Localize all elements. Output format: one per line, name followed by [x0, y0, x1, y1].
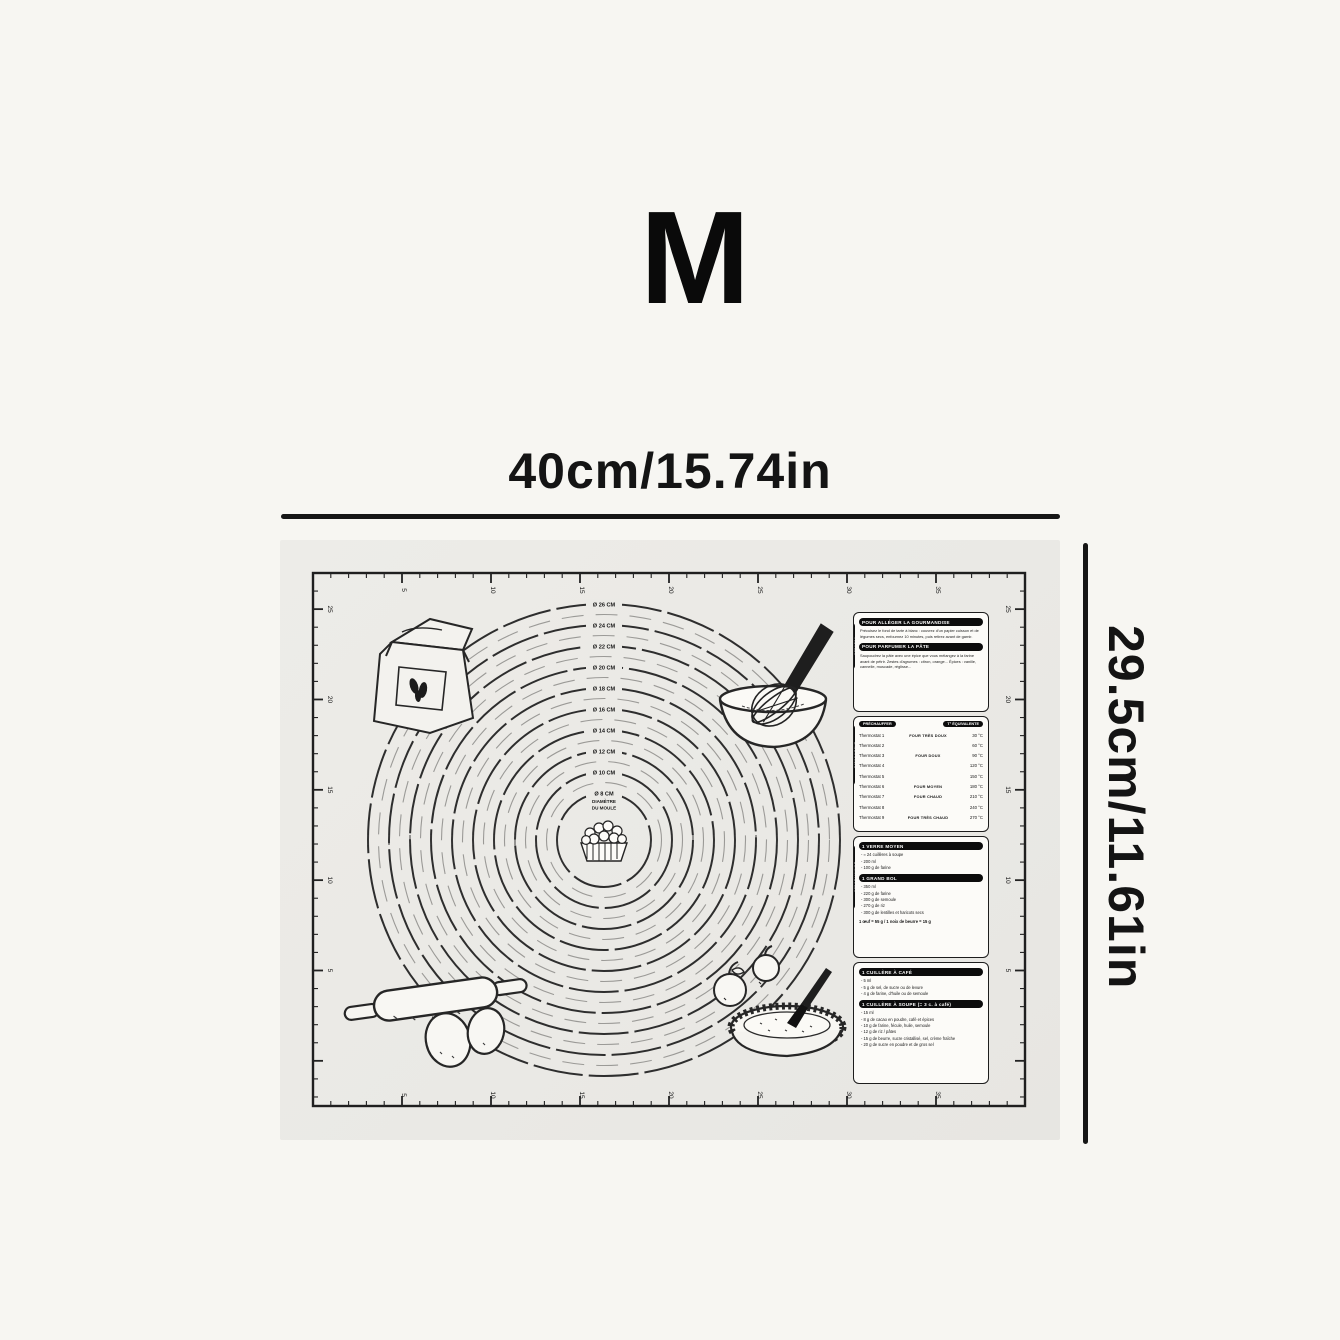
- thermostat-header-left: PRÉCHAUFFER: [859, 721, 896, 727]
- svg-text:5: 5: [400, 1093, 407, 1097]
- width-dimension-label: 40cm/15.74in: [280, 442, 1060, 500]
- center-label-line2: DU MOULE: [592, 806, 617, 811]
- equivalence-note: 1 œuf = 55 g / 1 noix de beurre = 15 g: [859, 919, 983, 924]
- tablespoon-heading: 1 CUILLÈRE À SOUPE (= 3 c. à café): [859, 1000, 983, 1008]
- thermostat-row: Thermostat 7 FOUR CHAUD 210 °C: [859, 792, 983, 802]
- oven-type: FOUR DOUX: [895, 753, 961, 758]
- svg-text:Ø 24 CM: Ø 24 CM: [593, 623, 616, 629]
- thermostat-row: Thermostat 1 FOUR TRÈS DOUX 30 °C: [859, 730, 983, 740]
- thermostat-label: Thermostat 5: [859, 774, 895, 779]
- svg-text:Ø 26 CM: Ø 26 CM: [593, 602, 616, 608]
- thermostat-table: Thermostat 1 FOUR TRÈS DOUX 30 °C Thermo…: [859, 730, 983, 823]
- svg-text:Ø 22 CM: Ø 22 CM: [593, 644, 616, 650]
- tartlet-icon: [581, 821, 627, 861]
- svg-text:10: 10: [1004, 877, 1011, 885]
- svg-text:25: 25: [326, 606, 333, 614]
- tips-heading-1: POUR ALLÉGER LA GOURMANDISE: [859, 618, 983, 626]
- temperature-value: 210 °C: [961, 794, 983, 799]
- svg-text:Ø 20 CM: Ø 20 CM: [593, 665, 616, 671]
- thermostat-label: Thermostat 8: [859, 805, 895, 810]
- svg-text:35: 35: [934, 1091, 941, 1099]
- thermostat-row: Thermostat 8 240 °C: [859, 802, 983, 812]
- teaspoon-list: 5 ml5 g de sel, de sucre ou de levure4 g…: [859, 978, 983, 997]
- measures-panel-tab: ÉQUIVALENCES: [853, 845, 855, 909]
- flour-bag-icon: [374, 619, 473, 733]
- tips-heading-2: POUR PARFUMER LA PÂTE: [859, 643, 983, 651]
- product-size-label: M: [595, 192, 795, 324]
- temperature-value: 30 °C: [961, 733, 983, 738]
- temperature-value: 60 °C: [961, 743, 983, 748]
- svg-text:30: 30: [845, 1091, 852, 1099]
- spoons-panel: 1 CUILLÈRE À CAFÉ 5 ml5 g de sel, de suc…: [853, 962, 989, 1084]
- temperature-value: 150 °C: [961, 774, 983, 779]
- svg-text:15: 15: [1004, 786, 1011, 794]
- svg-text:5: 5: [326, 969, 333, 973]
- apples-icon: [714, 946, 779, 1006]
- thermostat-row: Thermostat 9 FOUR TRÈS CHAUD 270 °C: [859, 812, 983, 822]
- svg-text:35: 35: [934, 586, 941, 594]
- bowl-list: 350 ml220 g de farine300 g de semoule270…: [859, 884, 983, 916]
- oven-type: FOUR MOYEN: [895, 784, 961, 789]
- svg-text:25: 25: [1004, 606, 1011, 614]
- thermostat-label: Thermostat 4: [859, 763, 895, 768]
- thermostat-label: Thermostat 7: [859, 794, 895, 799]
- svg-text:5: 5: [1004, 969, 1011, 973]
- thermostat-row: Thermostat 3 FOUR DOUX 90 °C: [859, 750, 983, 760]
- temperature-value: 120 °C: [961, 763, 983, 768]
- thermostat-label: Thermostat 1: [859, 733, 895, 738]
- oven-type: FOUR TRÈS DOUX: [895, 733, 961, 738]
- list-item: 20 g de sucre en poudre et de gros sel: [861, 1042, 983, 1048]
- svg-text:10: 10: [489, 586, 496, 594]
- bowl-heading: 1 GRAND BOL: [859, 874, 983, 882]
- temperature-value: 180 °C: [961, 784, 983, 789]
- whisk-bowl-icon: [720, 624, 833, 747]
- svg-text:Ø 16 CM: Ø 16 CM: [593, 707, 616, 713]
- svg-text:Ø 14 CM: Ø 14 CM: [593, 728, 616, 734]
- teaspoon-heading: 1 CUILLÈRE À CAFÉ: [859, 968, 983, 976]
- temperature-value: 270 °C: [961, 815, 983, 820]
- list-item: 100 g de farine: [861, 865, 983, 871]
- svg-text:Ø 10 CM: Ø 10 CM: [593, 770, 616, 776]
- svg-text:20: 20: [326, 696, 333, 704]
- thermostat-label: Thermostat 3: [859, 753, 895, 758]
- width-dimension-line: [281, 514, 1060, 519]
- svg-text:15: 15: [578, 1091, 585, 1099]
- thermostat-header-right: T° ÉQUIVALENTE: [943, 721, 983, 727]
- thermostat-row: Thermostat 2 60 °C: [859, 740, 983, 750]
- tips-body-1: Précuisez le fond de tarte à blanc : cou…: [860, 628, 982, 639]
- glass-list: ≈ 24 cuillères à soupe200 ml100 g de far…: [859, 852, 983, 871]
- height-dimension-line: [1083, 543, 1088, 1144]
- temperature-value: 240 °C: [961, 805, 983, 810]
- list-item: 4 g de farine, d'huile ou de semoule: [861, 991, 983, 997]
- tips-body-2: Saupoudrez la pâte avec une épice que vo…: [860, 653, 982, 670]
- thermostat-label: Thermostat 2: [859, 743, 895, 748]
- tips-panel-tab: ASTUCES: [853, 623, 855, 669]
- svg-text:25: 25: [756, 586, 763, 594]
- temperature-value: 90 °C: [961, 753, 983, 758]
- svg-text:Ø 12 CM: Ø 12 CM: [593, 749, 616, 755]
- thermostat-row: Thermostat 4 120 °C: [859, 761, 983, 771]
- pie-icon: [731, 968, 843, 1056]
- thermostat-panel-tab: THERMOSTAT: [853, 725, 855, 785]
- center-label-line1: DIAMÈTRE: [592, 797, 616, 804]
- oven-type: FOUR TRÈS CHAUD: [895, 815, 961, 820]
- svg-text:30: 30: [845, 586, 852, 594]
- height-dimension-label: 29.5cm/11.61in: [1097, 625, 1155, 1075]
- svg-text:5: 5: [400, 588, 407, 592]
- svg-text:Ø 8 CM: Ø 8 CM: [594, 791, 614, 797]
- svg-text:15: 15: [326, 786, 333, 794]
- svg-text:10: 10: [489, 1091, 496, 1099]
- svg-text:25: 25: [756, 1091, 763, 1099]
- thermostat-row: Thermostat 5 150 °C: [859, 771, 983, 781]
- list-item: 300 g de lentilles et haricots secs: [861, 910, 983, 916]
- measures-panel: ÉQUIVALENCES 1 VERRE MOYEN ≈ 24 cuillère…: [853, 836, 989, 958]
- oven-type: FOUR CHAUD: [895, 794, 961, 799]
- svg-text:20: 20: [1004, 696, 1011, 704]
- svg-text:10: 10: [326, 877, 333, 885]
- svg-text:20: 20: [667, 586, 674, 594]
- thermostat-panel: THERMOSTAT PRÉCHAUFFER T° ÉQUIVALENTE Th…: [853, 716, 989, 832]
- svg-text:Ø 18 CM: Ø 18 CM: [593, 686, 616, 692]
- tablespoon-list: 15 ml8 g de cacao en poudre, café et épi…: [859, 1010, 983, 1048]
- pastry-mat: 5101520253035510152025303525201510525201…: [280, 540, 1060, 1140]
- thermostat-label: Thermostat 9: [859, 815, 895, 820]
- glass-heading: 1 VERRE MOYEN: [859, 842, 983, 850]
- tips-panel: ASTUCES POUR ALLÉGER LA GOURMANDISE Préc…: [853, 612, 989, 712]
- thermostat-row: Thermostat 6 FOUR MOYEN 180 °C: [859, 781, 983, 791]
- svg-text:15: 15: [578, 586, 585, 594]
- thermostat-label: Thermostat 6: [859, 784, 895, 789]
- svg-text:20: 20: [667, 1091, 674, 1099]
